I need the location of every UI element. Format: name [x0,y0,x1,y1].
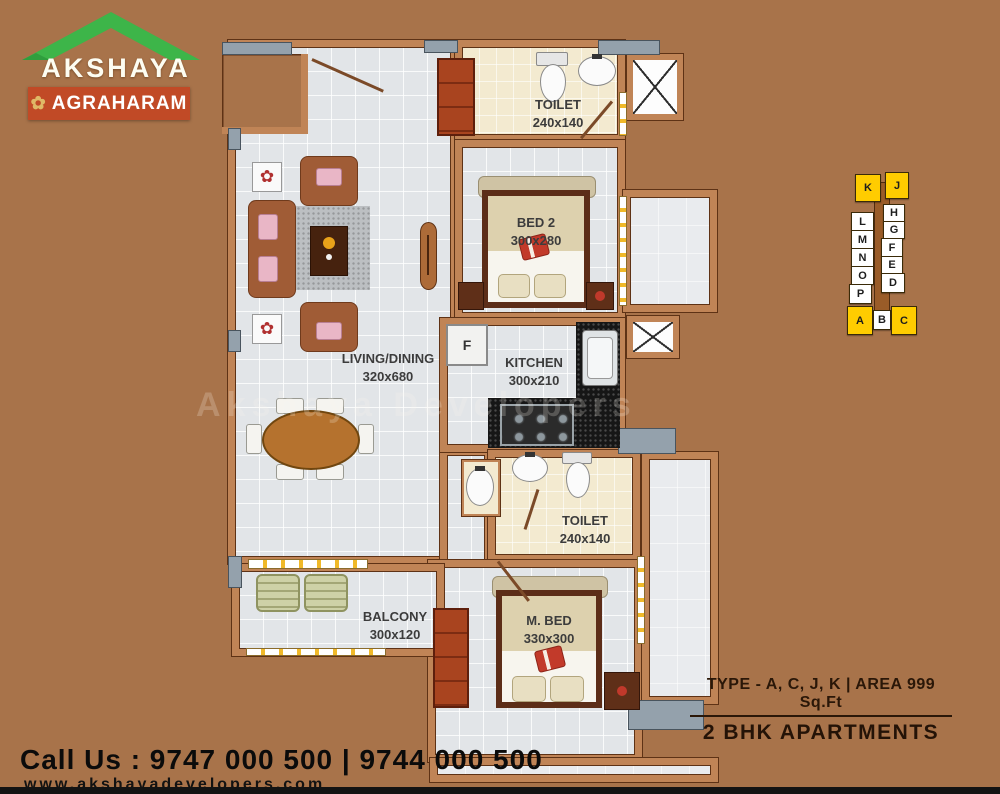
label-master-bed: M. BED 330x300 [524,612,575,647]
column-left-wall [228,128,241,150]
tap-icon [592,54,602,59]
label-living-dining: LIVING/DINING 320x680 [342,350,434,385]
kitchen-sink [582,330,618,386]
tap-icon [525,452,535,457]
basin-toilet-top [578,56,616,86]
basin-toilet-mid [512,454,548,482]
keyplan-unit-L: L [851,212,874,231]
keyplan-unit-E: E [881,256,903,274]
logo-project-banner: ✿ AGRAHARAM [28,87,190,120]
keyplan-unit-C: C [891,306,917,335]
label-toilet-top: TOILET 240x140 [533,96,584,131]
armchair-bottom-cushion [316,322,342,340]
keyplan-unit-N: N [851,248,874,267]
coffee-table [310,226,348,276]
keyplan-unit-B: B [873,310,891,330]
plant-pot-top: ✿ [252,162,282,192]
keyplan-unit-H: H [883,204,905,222]
label-balcony: BALCONY 300x120 [363,608,427,643]
type-area-line: TYPE - A, C, J, K | AREA 999 Sq.Ft [690,676,952,717]
keyplan-unit-O: O [851,266,874,285]
mbed-pillow-2 [550,676,584,702]
column-top-mid [424,40,458,53]
table-decor [323,237,335,249]
cabinet-near-toilet-top [437,58,475,136]
keyplan: K J H G F E D L M N O P A B C [843,166,923,342]
decor-dot [617,686,627,696]
master-wardrobe [433,608,469,708]
open-strip-right-lower [642,452,718,704]
refrigerator-box: F [446,324,488,366]
armchair-top-cushion [316,168,342,186]
keyplan-unit-K: K [855,174,881,202]
bottom-black-bar [0,787,1000,794]
bed2-nightstand-right [586,282,614,310]
keyplan-unit-D: D [881,273,905,293]
column-mid-right [618,428,676,454]
duct-shaft-top [627,54,683,120]
mbed-nightstand [604,672,640,710]
window-balcony-slider [248,559,368,569]
bed2-pillow-2 [534,274,566,298]
column-top-right [598,40,660,55]
wheat-ornament-icon: ✿ [31,93,47,114]
mbed-pillow-1 [512,676,546,702]
column-balcony-corner [228,556,242,588]
window-master-bed [637,556,645,644]
watermark-text: Akshaya Developers [196,386,637,425]
open-strip-right-upper [623,190,717,312]
logo-brand-text: AKSHAYA [16,53,216,84]
decor-dot [595,291,605,301]
main-door-leaf [420,222,437,290]
duct-shaft-kitchen [627,316,679,358]
logo: AKSHAYA ✿ AGRAHARAM [16,8,216,120]
door-knob [427,235,429,275]
floorplan-poster: AKSHAYA ✿ AGRAHARAM ✿ ✿ [0,0,1000,794]
column-left-wall-2 [228,330,241,352]
sofa-cushion-2 [258,256,278,282]
keyplan-unit-M: M [851,230,874,249]
bhk-line: 2 BHK APARTMENTS [690,721,952,745]
dining-chair-4 [358,424,374,454]
entry-notch [222,54,308,134]
type-area-block: TYPE - A, C, J, K | AREA 999 Sq.Ft 2 BHK… [690,676,952,745]
dining-chair-3 [246,424,262,454]
call-us-line: Call Us : 9747 000 500 | 9744 000 500 [20,744,543,776]
keyplan-unit-J: J [885,172,909,199]
sink-bowl [587,337,613,379]
window-balcony-rail [246,648,386,656]
label-bed2: BED 2 300x280 [511,214,562,249]
keyplan-unit-G: G [883,221,905,239]
refrigerator-label: F [463,337,472,353]
balcony-chair-2 [304,574,348,612]
tap-icon [475,466,485,471]
bed2-nightstand-left [458,282,484,310]
bed2-pillow-1 [498,274,530,298]
window-toilet-top [619,92,627,136]
keyplan-unit-P: P [849,284,872,304]
logo-project-text: AGRAHARAM [52,93,188,115]
sofa-cushion-1 [258,214,278,240]
balcony-chair-1 [256,574,300,612]
label-kitchen: KITCHEN 300x210 [505,354,563,389]
column-top-left [222,42,292,55]
keyplan-unit-A: A [847,306,873,335]
basin-wash-niche [466,468,494,506]
plant-pot-bottom: ✿ [252,314,282,344]
window-bed2 [619,196,627,306]
keyplan-unit-F: F [881,238,903,257]
label-toilet-mid: TOILET 240x140 [560,512,611,547]
